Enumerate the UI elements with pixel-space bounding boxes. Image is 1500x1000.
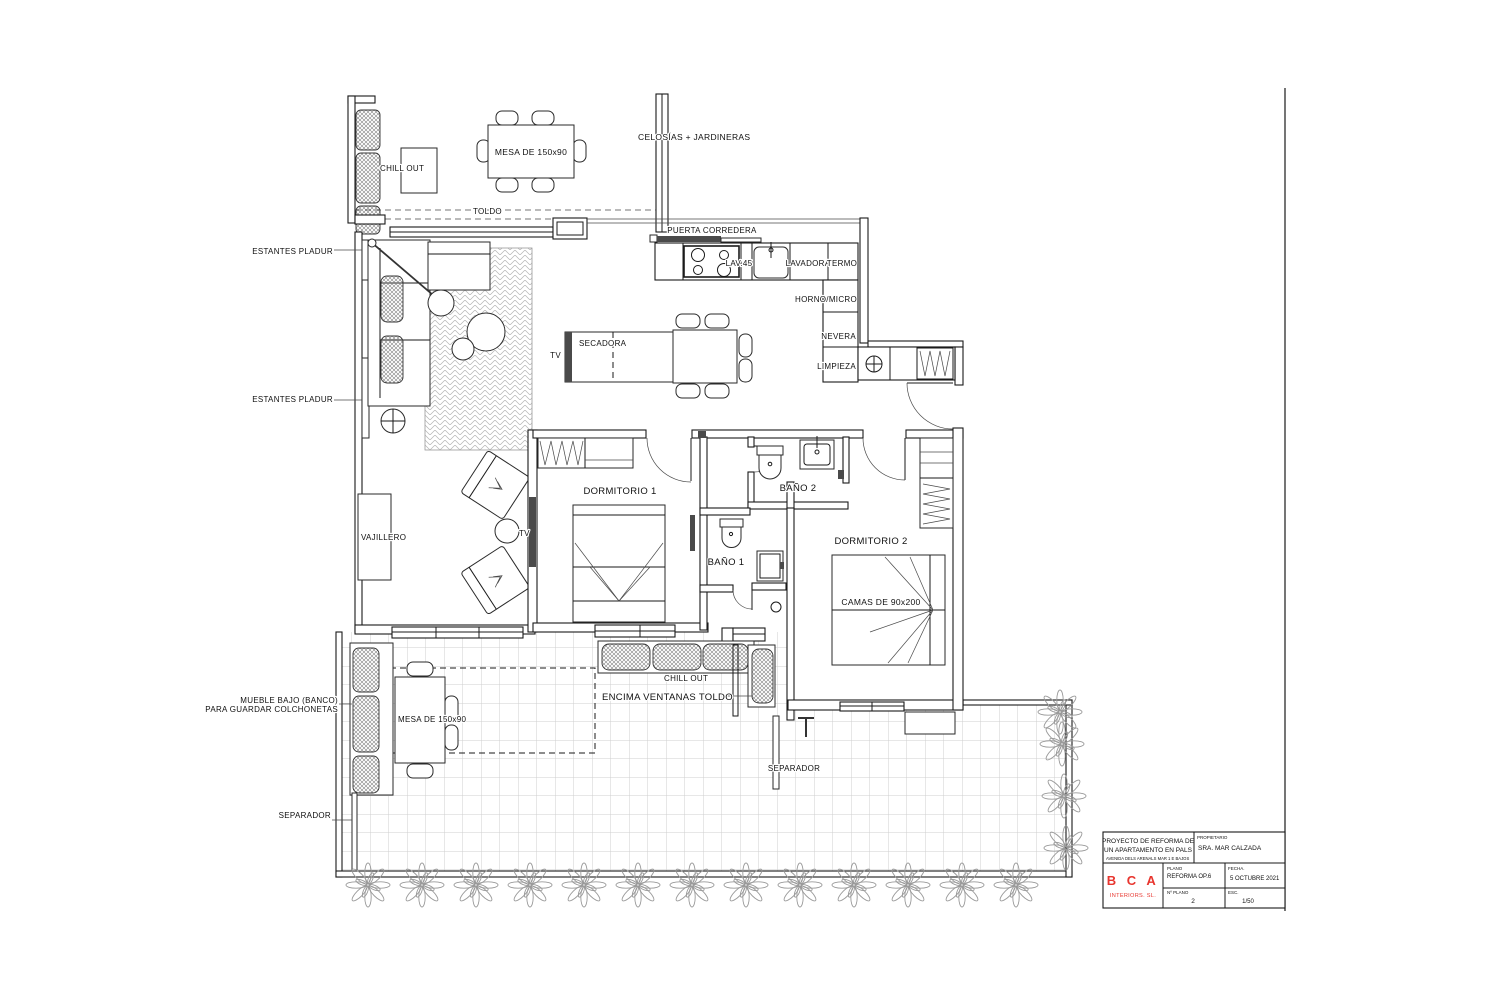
label-bano-1: BAÑO 1 (708, 557, 745, 568)
wall (533, 430, 646, 438)
label-encima-ventanas: ENCIMA VENTANAS TOLDO (602, 692, 733, 703)
pillar (553, 218, 587, 239)
chair (676, 314, 700, 328)
bench-cushion (653, 644, 701, 670)
sliding-door-panel (657, 236, 721, 242)
terrace-left-wall (348, 96, 355, 223)
bench-cushion (356, 153, 380, 203)
label-tv-lounge: TV (519, 529, 530, 538)
sofa-cushion (381, 336, 403, 383)
chair (573, 140, 586, 162)
label-nevera: NEVERA (821, 332, 856, 341)
terrace-parapet-bottom (336, 871, 1072, 877)
tv-stand (495, 519, 519, 543)
floor-lamp-base (368, 239, 376, 247)
project-title-line2: UN APARTAMENTO EN PALS (1104, 847, 1193, 854)
armchair (461, 546, 530, 615)
esc-value: 1/50 (1242, 899, 1254, 905)
bench-cushion (353, 648, 379, 692)
label-secadora: SECADORA (579, 339, 627, 348)
bed-dorm1 (573, 505, 665, 622)
toilet-tank (720, 519, 743, 527)
entrance-door-swing (907, 383, 953, 429)
wall (955, 347, 963, 385)
firm-logo: B C A (1107, 873, 1159, 888)
wall (868, 341, 963, 347)
tv-panel-island (565, 332, 572, 382)
wall (748, 502, 848, 509)
wall (700, 508, 750, 515)
wall (700, 585, 733, 592)
label-mueble-bajo-2: PARA GUARDAR COLCHONETAS (205, 705, 338, 714)
terrace-parapet-left (336, 632, 342, 877)
project-title-line1: PROYECTO DE REFORMA DE (1102, 838, 1195, 845)
shower-door-handle (780, 562, 784, 569)
chair (739, 334, 752, 357)
label-dormitorio-2: DORMITORIO 2 (834, 536, 907, 547)
terrace-parapet-top-right (963, 700, 1072, 705)
toilet-tank (757, 446, 783, 455)
wall (748, 437, 754, 447)
wall (355, 215, 385, 224)
sliding-door-panel (721, 238, 761, 242)
wall-east-dorm2 (953, 428, 963, 710)
chair (407, 764, 433, 778)
label-termo: TERMO (827, 259, 857, 268)
label-tv-island: TV (550, 351, 561, 360)
bench-cushion (602, 644, 650, 670)
chair (532, 178, 554, 192)
label-puerta-corredera: PUERTA CORREDERA (667, 226, 757, 235)
fecha-label: FECHA. (1228, 866, 1245, 871)
wall-west-dorm2 (787, 508, 794, 720)
bench-cushion (353, 756, 379, 793)
num-plano-label: Nº PLANO (1167, 890, 1189, 895)
door-swing (733, 590, 752, 609)
label-lavadora: LAVADORA (786, 259, 831, 268)
plano-value: REFORMA OP.6 (1167, 874, 1212, 880)
floor-plan-drawing: CHILL OUT MESA DE 150x90 CELOSÍAS + JARD… (0, 0, 1500, 1000)
bench-cushion (356, 110, 380, 150)
label-mesa-top: MESA DE 150x90 (495, 147, 567, 157)
fecha-value: 5 OCTUBRE 2021 (1230, 876, 1280, 882)
owner-name: SRA. MAR CALZADA (1198, 845, 1262, 852)
island-table (673, 330, 737, 383)
bench-cushion (752, 649, 773, 703)
floor-lamp-shade (428, 290, 454, 316)
ceiling-fixture (771, 602, 781, 612)
esc-label: ESC. (1228, 890, 1239, 895)
door-swing (863, 438, 905, 480)
label-limpieza: LIMPIEZA (817, 362, 856, 371)
chaise (428, 242, 490, 290)
chair (705, 384, 729, 398)
label-separador-right: SEPARADOR (768, 764, 820, 773)
label-vajillero: VAJILLERO (361, 533, 406, 542)
label-celosias: CELOSÍAS + JARDINERAS (638, 132, 750, 142)
door-swing (647, 438, 691, 482)
label-lav45: LAV.45 (726, 259, 753, 268)
label-mueble-bajo-1: MUEBLE BAJO (BANCO) (240, 696, 338, 705)
toilet (759, 455, 781, 479)
label-estantes-pladur-2: ESTANTES PLADUR (252, 395, 333, 404)
chair (705, 314, 729, 328)
wall-east (860, 218, 868, 343)
firm-subtitle: INTERIORS. SL. (1110, 893, 1156, 899)
tv-wall-panel (529, 497, 536, 567)
label-dormitorio-1: DORMITORIO 1 (583, 486, 656, 497)
wall (700, 437, 707, 630)
chair (496, 178, 518, 192)
label-bano-2: BAÑO 2 (780, 483, 817, 494)
label-chill-out-top: CHILL OUT (380, 164, 424, 173)
bench-cushion (353, 696, 379, 752)
wall-poche (690, 515, 695, 551)
toilet (722, 527, 741, 548)
facade-north (355, 215, 868, 242)
label-estantes-pladur-1: ESTANTES PLADUR (252, 247, 333, 256)
kitchen (655, 218, 963, 429)
chair (407, 662, 433, 676)
chair (445, 725, 458, 750)
chair (739, 359, 752, 382)
coffee-table-small (452, 338, 474, 360)
label-chill-out-bottom: CHILL OUT (664, 674, 708, 683)
owner-label: PROPIETARIO (1197, 835, 1228, 840)
plano-label: PLANO (1167, 866, 1183, 871)
chair (676, 384, 700, 398)
slider-jamb (650, 235, 657, 242)
terrace-step (905, 712, 955, 734)
armchair (461, 450, 530, 519)
num-plano-value: 2 (1191, 898, 1195, 905)
door-jamb (698, 431, 706, 438)
label-mesa-bottom: MESA DE 150x90 (398, 715, 466, 724)
chair (532, 111, 554, 125)
chair (496, 111, 518, 125)
floor-plan-sheet: CHILL OUT MESA DE 150x90 CELOSÍAS + JARD… (0, 0, 1500, 1000)
door-jamb (838, 470, 844, 479)
sofa-cushion (381, 276, 403, 322)
label-toldo: TOLDO (473, 207, 502, 216)
title-block: PROYECTO DE REFORMA DE UN APARTAMENTO EN… (1102, 88, 1285, 911)
separator-panel (352, 793, 357, 871)
label-camas: CAMAS DE 90x200 (841, 597, 920, 607)
label-horno-micro: HORNO/MICRO (795, 295, 857, 304)
separator-panel (773, 716, 779, 789)
label-separador-left: SEPARADOR (279, 811, 331, 820)
project-address: AVENIDA DELS ARENALS MAR 1 E BAJOS (1106, 856, 1189, 861)
wall (752, 583, 786, 590)
shower (757, 551, 783, 581)
bench-cushion (703, 644, 748, 670)
wall (692, 430, 863, 438)
